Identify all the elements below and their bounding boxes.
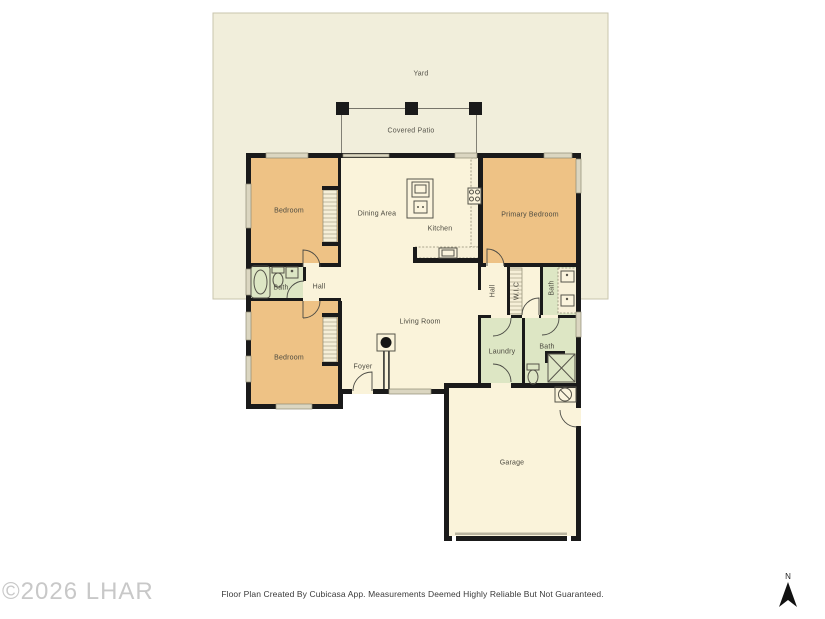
floor-plan-page: Yard Covered Patio Bedroom Dining Area K… xyxy=(0,0,825,619)
door-gap xyxy=(576,408,581,426)
window-icon xyxy=(544,153,572,158)
patio-post-icon xyxy=(405,102,418,115)
door-gap xyxy=(541,315,558,318)
window-icon xyxy=(576,159,581,193)
window-icon xyxy=(455,153,477,158)
faucet-icon xyxy=(566,274,568,276)
wall-segment xyxy=(507,267,510,315)
laundry-floor xyxy=(481,318,522,383)
faucet-icon xyxy=(566,298,568,300)
vanity-sink-icon xyxy=(561,271,574,282)
patio-post-icon xyxy=(336,102,349,115)
garage-door-icon xyxy=(455,533,567,536)
floor-plan-drawing xyxy=(0,0,825,619)
window-icon xyxy=(246,269,251,295)
stub-wall xyxy=(388,351,390,389)
wall-segment xyxy=(540,267,543,315)
wall-segment xyxy=(478,315,481,383)
patio-door-icon xyxy=(343,154,389,157)
front-door-gap xyxy=(352,389,373,394)
closet-wall xyxy=(322,242,338,246)
north-label: N xyxy=(774,572,802,581)
disclaimer-text: Floor Plan Created By Cubicasa App. Meas… xyxy=(0,589,825,599)
cooktop-dot-icon xyxy=(422,206,424,208)
door-gap xyxy=(522,315,539,318)
wall-segment xyxy=(478,267,481,290)
hall-left-floor xyxy=(306,267,338,298)
door-gap xyxy=(303,263,319,267)
door-gap xyxy=(491,315,511,318)
door-gap xyxy=(303,281,306,298)
wall-segment xyxy=(478,153,483,267)
closet-wall xyxy=(322,313,338,317)
door-gap xyxy=(303,298,319,301)
wall-segment xyxy=(338,301,342,404)
wall-segment xyxy=(522,318,525,383)
passage-gap xyxy=(338,267,341,298)
garage-door-jamb xyxy=(452,536,456,541)
closet-icon xyxy=(323,190,337,242)
garage-door-jamb xyxy=(567,536,571,541)
closet-icon xyxy=(323,317,337,362)
bath-bottom-right-floor xyxy=(525,318,576,383)
fireplace-dot-icon xyxy=(381,337,392,348)
living-foyer-floor xyxy=(341,263,478,389)
closet-wall xyxy=(322,362,338,366)
wall-segment xyxy=(444,536,581,541)
window-icon xyxy=(246,312,251,340)
hall-right-floor xyxy=(481,267,507,315)
wall-segment xyxy=(338,158,341,263)
north-arrow-icon xyxy=(774,581,802,609)
compass: N xyxy=(774,572,802,614)
cooktop-dot-icon xyxy=(417,206,419,208)
door-gap xyxy=(486,263,504,267)
window-icon xyxy=(276,404,312,409)
window-icon xyxy=(389,389,431,394)
door-gap xyxy=(491,383,511,388)
stub-wall xyxy=(383,351,385,389)
wall-segment xyxy=(576,383,581,541)
wall-segment xyxy=(413,258,481,263)
window-icon xyxy=(246,184,251,228)
window-icon xyxy=(576,312,581,337)
garage-floor xyxy=(449,388,576,536)
passage-gap xyxy=(478,290,481,315)
primary-bedroom-floor xyxy=(483,158,576,263)
vanity-sink-icon xyxy=(561,295,574,306)
wall-segment xyxy=(444,383,449,541)
patio-post-icon xyxy=(469,102,482,115)
window-icon xyxy=(266,153,308,158)
closet-rod-icon xyxy=(509,268,522,314)
window-icon xyxy=(246,356,251,382)
faucet-icon xyxy=(291,270,294,273)
closet-wall xyxy=(322,186,338,190)
north-arrow-shape xyxy=(779,582,797,607)
